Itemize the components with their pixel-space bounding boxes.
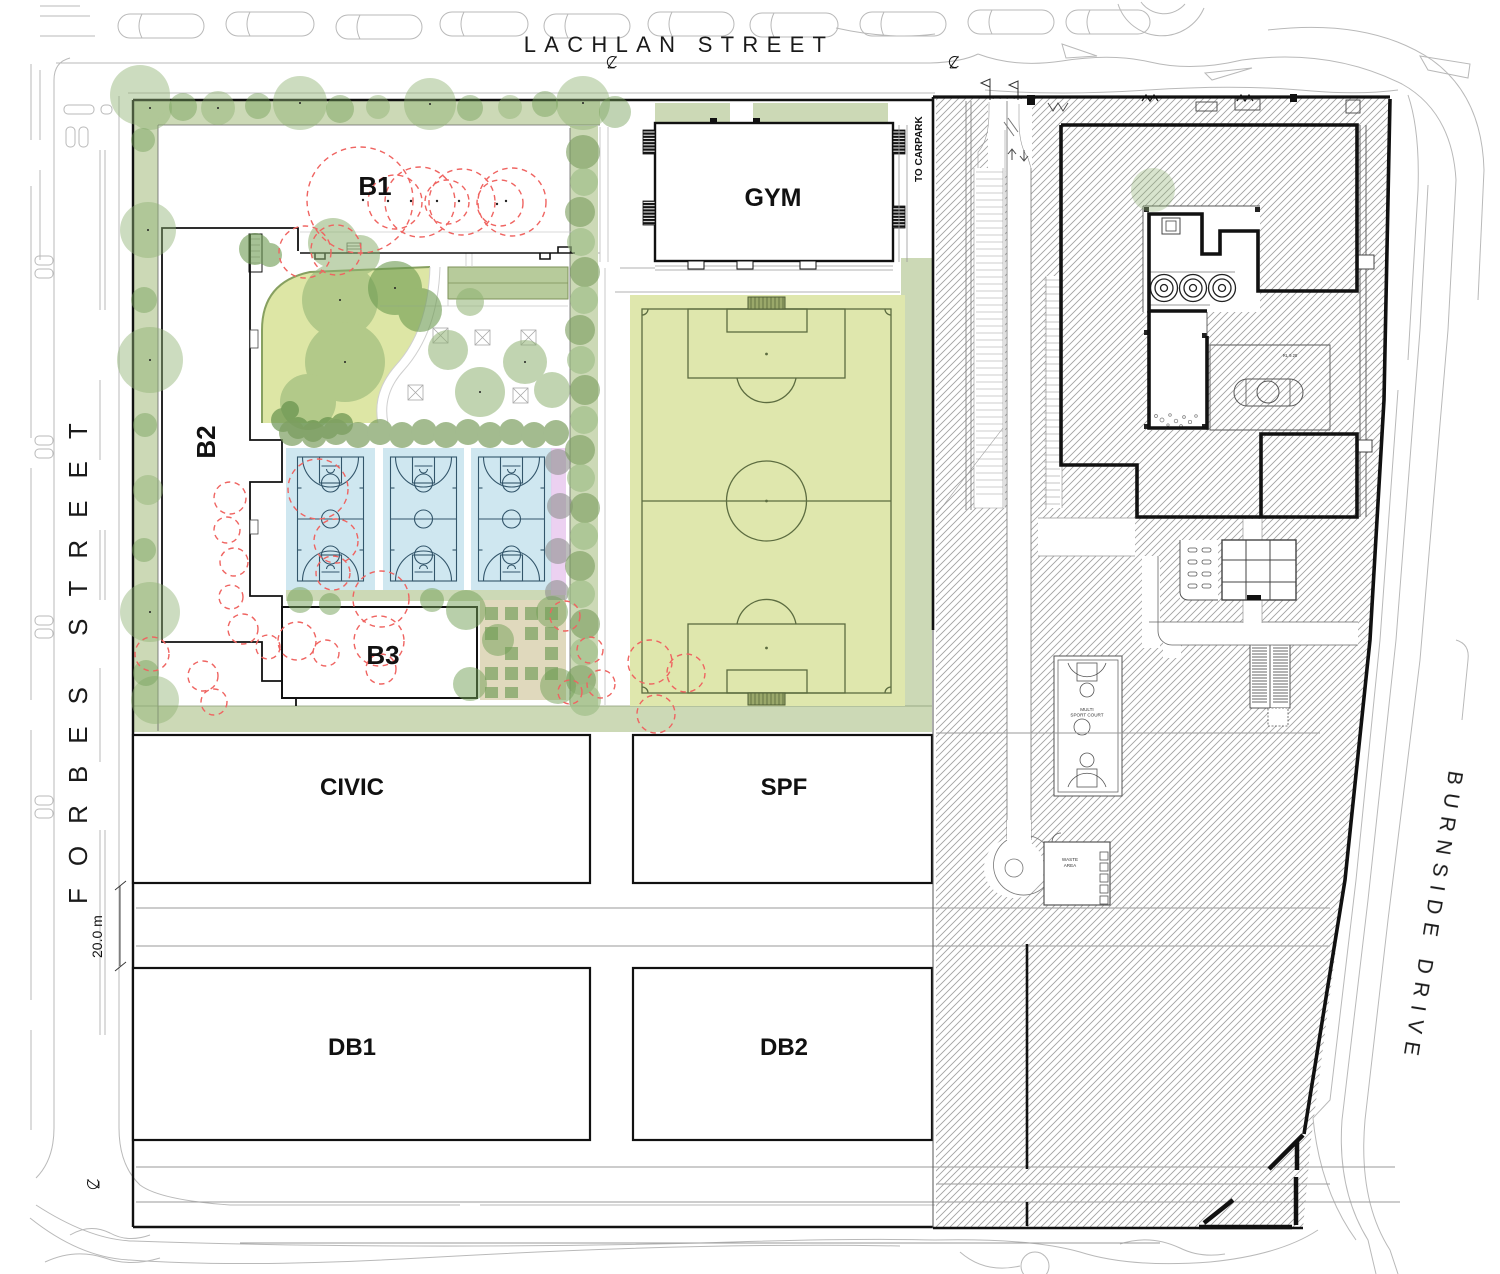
svg-text:B1: B1	[358, 171, 391, 201]
svg-text:SPORT COURT: SPORT COURT	[1070, 713, 1103, 718]
svg-text:FORBES STREET: FORBES STREET	[63, 401, 93, 904]
svg-text:DB2: DB2	[760, 1034, 808, 1061]
svg-text:WASTE: WASTE	[1062, 857, 1078, 862]
svg-text:MULTI: MULTI	[1080, 707, 1093, 712]
svg-text:LACHLAN STREET: LACHLAN STREET	[524, 32, 835, 57]
svg-text:SPF: SPF	[761, 774, 808, 801]
svg-text:CIVIC: CIVIC	[320, 774, 384, 801]
svg-text:AREA: AREA	[1064, 863, 1077, 868]
svg-text:B2: B2	[191, 425, 221, 458]
svg-text:DB1: DB1	[328, 1034, 376, 1061]
svg-text:20.0 m: 20.0 m	[89, 915, 105, 958]
svg-text:GYM: GYM	[745, 184, 802, 212]
svg-text:B3: B3	[366, 640, 399, 670]
svg-text:RL 9.20: RL 9.20	[1283, 353, 1298, 358]
svg-text:TO CARPARK: TO CARPARK	[914, 115, 925, 182]
